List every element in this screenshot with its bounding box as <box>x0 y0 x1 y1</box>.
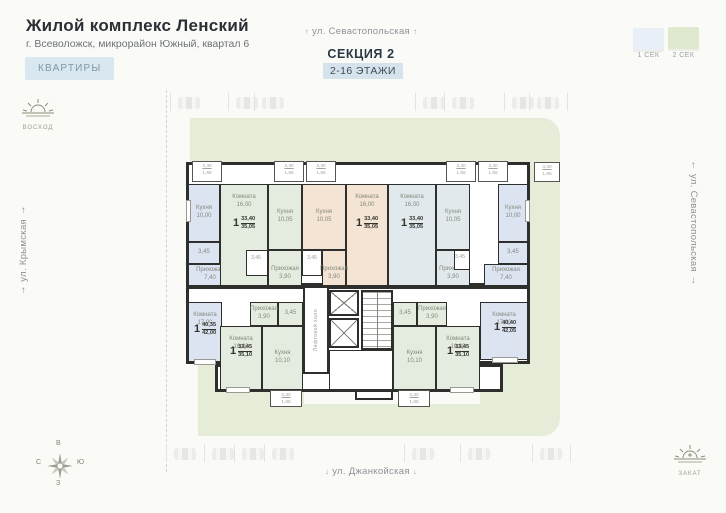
compass-letter-west: З <box>56 480 60 487</box>
arrow-up-icon: ↑ <box>691 160 696 171</box>
room-кухня[interactable]: Кухня10,10 <box>262 326 303 390</box>
parking-divider <box>170 93 171 111</box>
room-label: Комната16,00 <box>400 194 424 210</box>
parking-car <box>262 97 284 109</box>
room-wet[interactable]: 3,45 <box>498 242 528 264</box>
room-кухня[interactable]: Кухня10,00 <box>498 184 528 242</box>
page-subtitle: г. Всеволожск, микрорайон Южный, квартал… <box>26 38 249 50</box>
apartment-badge: 133,4035,05 <box>392 216 432 230</box>
parking-divider <box>444 93 445 111</box>
parking-car <box>412 448 434 460</box>
elevator-hall-label: Лифтовой холл <box>313 309 319 351</box>
dimension-label: 3,45 <box>244 255 268 261</box>
apartment-badge: 140,3542,00 <box>186 322 224 336</box>
dimension-label: 3,45 <box>300 255 324 261</box>
stairs <box>361 290 393 350</box>
room-label: 3,45 <box>507 249 519 257</box>
room-label: Прихожая3,90 <box>271 266 299 282</box>
parking-car <box>178 97 200 109</box>
section-title: СЕКЦИЯ 2 <box>283 47 439 61</box>
room-кухня[interactable]: Кухня10,10 <box>393 326 436 390</box>
sunset-icon <box>670 441 710 465</box>
street-label-top: ↑ ул. Севастопольская ↑ <box>283 21 439 39</box>
parking-divider <box>204 444 205 462</box>
room-кухня[interactable]: Кухня10,05 <box>302 184 346 250</box>
window <box>450 387 474 393</box>
balcony: 3,301,65 <box>534 162 560 182</box>
lawn-area <box>530 164 560 436</box>
parking-car <box>468 448 490 460</box>
room-label: Кухня10,10 <box>274 350 290 366</box>
room-wet[interactable] <box>454 250 470 270</box>
sunrise: ВОСХОД <box>16 95 60 131</box>
parking-car <box>537 97 559 109</box>
room-label: Кухня10,00 <box>196 205 212 221</box>
room-прихожая[interactable]: Прихожая7,40 <box>484 264 528 286</box>
parking-car <box>423 97 445 109</box>
room-label: Кухня10,05 <box>316 209 332 225</box>
room-label: Кухня10,05 <box>277 209 293 225</box>
parking-divider <box>570 444 571 462</box>
room-label: Прихожая3,90 <box>250 306 278 322</box>
floors-badge: 2-16 ЭТАЖИ <box>323 63 403 79</box>
compass: В С Ю З <box>36 440 84 492</box>
parking-divider <box>404 444 405 462</box>
room-label: Прихожая3,90 <box>418 306 446 322</box>
room-label: Комната16,00 <box>355 194 379 210</box>
balcony: 3,301,65 <box>446 161 476 182</box>
apartment-badge: 133,4035,05 <box>224 216 264 230</box>
dimension-label: 3,45 <box>448 254 472 260</box>
floor-plan: Кухня10,003,45Прихожая7,40Комната16,00Ку… <box>158 88 620 480</box>
balcony: 3,301,65 <box>478 161 508 182</box>
room-label: Кухня10,10 <box>406 350 422 366</box>
window <box>492 357 518 363</box>
room-wet[interactable] <box>302 250 322 276</box>
sunrise-label: ВОСХОД <box>16 125 60 131</box>
room-комната[interactable]: Комната16,00 <box>346 184 388 286</box>
legend-swatch-sec2[interactable] <box>668 27 699 49</box>
parking-car <box>512 97 534 109</box>
legend-swatch-sec1[interactable] <box>633 28 664 50</box>
balcony: 3,301,65 <box>192 161 222 182</box>
vestibule <box>329 350 393 390</box>
parking-car <box>212 448 234 460</box>
apartment-badge: 133,4035,05 <box>347 216 387 230</box>
street-label-left: ↑ ул. Крымская ↑ <box>18 205 29 296</box>
room-wet[interactable]: 3,45 <box>188 242 220 264</box>
apartment-badge: 133,4535,10 <box>438 344 478 358</box>
room-прихожая[interactable]: Прихожая3,90 <box>250 302 278 326</box>
parking-divider <box>234 444 235 462</box>
sunset-label: ЗАКАТ <box>668 471 712 477</box>
room-label: Прихожая3,90 <box>320 266 348 282</box>
lawn-area <box>198 404 530 436</box>
arrow-down-icon: ↓ <box>691 275 696 286</box>
parking-divider <box>254 93 255 111</box>
page-title: Жилой комплекс Ленский <box>26 16 249 36</box>
window <box>194 359 216 365</box>
parking-car <box>242 448 264 460</box>
room-label: Кухня10,00 <box>505 205 521 221</box>
room-прихожая[interactable]: Прихожая3,90 <box>322 250 346 286</box>
compass-letter-east: В <box>56 440 61 447</box>
arrow-up-icon: ↑ <box>21 205 26 216</box>
window <box>226 387 250 393</box>
room-кухня[interactable]: Кухня10,05 <box>436 184 470 250</box>
room-label: 3,45 <box>198 249 210 257</box>
parking-divider <box>166 444 167 462</box>
apartment-badge: 140,4042,05 <box>484 320 526 334</box>
legend-label-sec2: 2 СЕК <box>668 52 699 59</box>
street-label-right: ↑ ул. Севастопольская ↓ <box>688 160 699 286</box>
room-label: Прихожая7,40 <box>492 267 520 283</box>
arrow-up-icon: ↑ <box>305 27 309 36</box>
room-кухня[interactable]: Кухня10,00 <box>188 184 220 242</box>
parking-divider <box>504 93 505 111</box>
parking-divider <box>415 93 416 111</box>
room-комната[interactable]: Комната16,00 <box>388 184 436 286</box>
parking-car <box>540 448 562 460</box>
elevator-hall: Лифтовой холл <box>303 286 329 374</box>
apartments-button[interactable]: КВАРТИРЫ <box>25 57 114 80</box>
parking-divider <box>567 93 568 111</box>
compass-icon <box>47 453 73 479</box>
room-wet[interactable]: 3,45 <box>278 302 303 326</box>
room-кухня[interactable]: Кухня10,05 <box>268 184 302 250</box>
window <box>186 200 191 222</box>
legend-label-sec1: 1 СЕК <box>633 52 664 59</box>
room-label: 3,45 <box>285 310 297 318</box>
elevator-shaft <box>329 318 359 348</box>
room-прихожая[interactable]: Прихожая3,90 <box>417 302 447 326</box>
entrance-porch <box>355 390 393 400</box>
parking-divider <box>264 444 265 462</box>
parking-car <box>272 448 294 460</box>
balcony: 3,301,65 <box>274 161 304 182</box>
parking-divider <box>529 93 530 111</box>
arrow-up-icon: ↑ <box>413 27 417 36</box>
arrow-up-icon: ↑ <box>21 285 26 296</box>
room-label: Комната16,00 <box>232 194 256 210</box>
parking-divider <box>460 444 461 462</box>
parking-divider <box>532 444 533 462</box>
apartment-badge: 133,4535,10 <box>222 344 260 358</box>
room-wet[interactable]: 3,45 <box>393 302 417 326</box>
balcony: 3,301,65 <box>306 161 336 182</box>
page: Жилой комплекс Ленский г. Всеволожск, ми… <box>0 0 726 513</box>
elevator-shaft <box>329 290 359 316</box>
balcony: 3,301,65 <box>270 390 302 407</box>
sunrise-icon <box>18 95 58 119</box>
compass-letter-south: Ю <box>77 459 84 466</box>
room-прихожая[interactable]: Прихожая3,90 <box>268 250 302 286</box>
room-label: Кухня10,05 <box>445 209 461 225</box>
room-wet[interactable] <box>246 250 268 276</box>
window <box>525 200 530 222</box>
lawn-area <box>190 118 560 164</box>
parking-car <box>452 97 474 109</box>
sunset: ЗАКАТ <box>668 441 712 477</box>
parking-divider <box>228 93 229 111</box>
compass-letter-north: С <box>36 459 41 466</box>
balcony: 3,301,65 <box>398 390 430 407</box>
parking-car <box>174 448 196 460</box>
room-label: 3,45 <box>399 310 411 318</box>
